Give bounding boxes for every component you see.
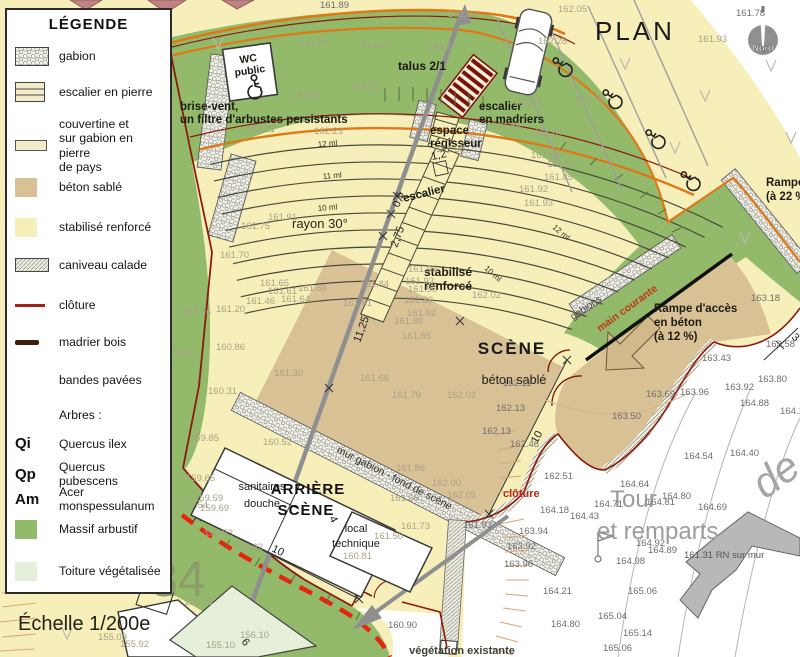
- elevation-label: 160.90: [388, 620, 417, 631]
- elevation-label: 162.23: [314, 126, 343, 137]
- elevation-label: 165.14: [623, 628, 652, 639]
- legend-item-escalier-pierre: escalier en pierre: [15, 82, 165, 102]
- plan-title: PLAN: [595, 16, 675, 46]
- elevation-label: 165.06: [603, 643, 632, 654]
- elevation-label: 159.65: [186, 473, 215, 484]
- elevation-label: 162.00: [432, 478, 461, 489]
- elevation-label: 162.11: [503, 378, 531, 389]
- legend-item-massif: Massif arbustif: [15, 520, 165, 539]
- elevation-label: 162.17: [428, 42, 457, 53]
- elevation-label: 160.81: [343, 551, 372, 562]
- elevation-label: 164.71: [594, 499, 623, 510]
- elevation-label: 162.05: [447, 490, 476, 501]
- couvertine-swatch: [15, 140, 47, 151]
- legend-item-couvertine: couvertine et sur gabion en pierre de pa…: [15, 117, 165, 175]
- local-technique-label-2: technique: [332, 538, 380, 550]
- talus-label: talus 2/1: [398, 59, 446, 73]
- ml12-label: 12 ml: [317, 138, 337, 149]
- elevation-label: 162.05: [558, 4, 587, 15]
- elevation-label: 161.91: [268, 212, 297, 223]
- elevation-label: 161.56: [390, 493, 419, 504]
- elevation-label: 161.84: [360, 279, 389, 290]
- elevation-label: 156.10: [240, 630, 269, 641]
- toiture-swatch: [15, 562, 37, 581]
- elevation-label: 161.30: [274, 368, 303, 379]
- elevation-label: 161.88: [394, 316, 423, 327]
- elevation-label: 160.52: [263, 437, 292, 448]
- elevation-label: 161.89: [492, 121, 521, 132]
- elevation-label: 161.46: [246, 296, 275, 307]
- rampe12-label-3: (à 12 %): [654, 331, 698, 343]
- legend-item-gabion: gabion: [15, 47, 165, 66]
- elevation-label: 165.06: [628, 586, 657, 597]
- elevation-label: 163.94: [519, 526, 548, 537]
- elevation-label: 159.62: [234, 542, 263, 553]
- elevation-label: 161.86: [396, 463, 425, 474]
- elevation-label: 161.85: [544, 172, 573, 183]
- espace-regisseur-label-1: espace: [430, 125, 469, 137]
- legend-item-am: Am Acer monspessulanum: [15, 485, 165, 513]
- legend-item-toiture: Toiture végétalisée: [15, 562, 165, 581]
- elevation-label: 163.80: [758, 374, 787, 385]
- elevation-label: 161.75: [241, 221, 270, 232]
- legend-item-cloture: clôture: [15, 298, 165, 312]
- elevation-label: 164.89: [648, 545, 677, 556]
- elevation-label: 161.93: [463, 520, 492, 531]
- elevation-label: 161.70: [220, 250, 249, 261]
- wc-public-building: WC public: [223, 43, 278, 102]
- legend-item-beton: béton sablé: [15, 178, 165, 197]
- elevation-label: 161.93: [524, 198, 553, 209]
- local-technique-label-1: local: [345, 523, 368, 535]
- elevation-label: 164.80: [662, 491, 691, 502]
- massif-swatch: [15, 520, 37, 539]
- elevation-label: 159.69: [200, 503, 229, 514]
- legend-item-madrier: madrier bois: [15, 335, 165, 349]
- arriere-scene-label-2: SCÈNE: [278, 502, 335, 519]
- legend-item-bandes: bandes pavées: [15, 373, 165, 387]
- elevation-label: 163.92: [507, 541, 536, 552]
- rampe12-label-1: Rampe d'accès: [654, 303, 737, 315]
- elevation-label: 161.20: [216, 304, 245, 315]
- elevation-label: 164.21: [543, 586, 572, 597]
- elevation-label: 164.69: [698, 502, 727, 513]
- elevation-label: 162.46: [510, 439, 539, 450]
- elevation-label: 159.53: [204, 528, 233, 539]
- elevation-label: 160.86: [216, 342, 245, 353]
- elevation-label: 163.43: [702, 353, 731, 364]
- elevation-label: 161.92: [519, 184, 548, 195]
- caniveau-swatch: [15, 258, 49, 272]
- elevation-label: 161.64: [281, 294, 310, 305]
- elevation-label: 164.88: [740, 398, 769, 409]
- elevation-label: 159.85: [190, 433, 219, 444]
- elevation-label: 163.69: [646, 389, 675, 400]
- legend-arbres-title: Arbres :: [15, 408, 165, 422]
- elevation-label: 162.20: [350, 82, 379, 93]
- cloture-label: clôture: [503, 488, 540, 500]
- elevation-label: 162.21: [246, 124, 275, 135]
- elevation-label: 161.73: [401, 521, 430, 532]
- escalier-pierre-swatch: [15, 82, 49, 102]
- elevation-label: 161.90: [408, 284, 437, 295]
- elevation-label: 161.93: [576, 94, 605, 105]
- cloture-swatch: [15, 304, 45, 307]
- elevation-label: 161.89: [404, 295, 433, 306]
- elevation-label: 163.58: [766, 339, 795, 350]
- elevation-label: 161.93: [698, 34, 727, 45]
- elevation-label: 161.66: [360, 373, 389, 384]
- elevation-label: 161.50: [374, 531, 403, 542]
- rampe22-label-2: (à 22 %): [766, 191, 800, 203]
- elevation-label: 164.12: [780, 406, 800, 417]
- elevation-label: 162.16: [292, 90, 321, 101]
- elevation-label: 162.13: [482, 426, 511, 437]
- elevation-label: 155.10: [206, 640, 235, 651]
- elevation-label: 156.79: [184, 597, 213, 608]
- gabion-swatch: [15, 47, 49, 66]
- legend-item-stabilise: stabilisé renforcé: [15, 218, 165, 237]
- elevation-label: 162.04: [448, 9, 477, 20]
- legend-panel: LÉGENDE gabion escalier en pierre couver…: [5, 8, 172, 594]
- elevation-label: 162.02: [300, 38, 329, 49]
- legend-item-caniveau: caniveau calade: [15, 258, 165, 272]
- elevation-label: 162.28: [538, 36, 567, 47]
- brise-vent-label-1: brise-vent,: [180, 101, 238, 113]
- elevation-label: 162.51: [544, 471, 573, 482]
- elevation-label: 160.31: [208, 386, 237, 397]
- elevation-label: 162.02: [447, 390, 476, 401]
- scale-label: Échelle 1/200e: [18, 612, 150, 635]
- elevation-label: 164.43: [570, 511, 599, 522]
- elevation-label: 164.54: [684, 451, 713, 462]
- elevation-label: 162.13: [496, 403, 525, 414]
- bandes-swatch: [15, 378, 45, 382]
- elevation-label: 163.50: [612, 411, 641, 422]
- elevation-label: 161.66: [298, 283, 327, 294]
- vegetation-label: végétation existante: [409, 645, 515, 657]
- rn-benchmark-label: 161.31 RN sur mur: [684, 550, 764, 561]
- stabilise-swatch: [15, 218, 37, 237]
- elevation-label: 165.04: [598, 611, 627, 622]
- elevation-label: 159.24: [182, 306, 211, 317]
- elevation-label: 164.98: [616, 556, 645, 567]
- elevation-label: 161.30: [436, 144, 465, 155]
- rampe22-label-1: Rampe: [766, 177, 800, 189]
- scene-label: SCÈNE: [478, 339, 547, 358]
- elevation-label: 163.18: [751, 293, 780, 304]
- elevation-label: 155.92: [120, 639, 149, 650]
- elevation-label: 164.18: [540, 505, 569, 516]
- elevation-label: 163.96: [504, 559, 533, 570]
- north-label: Nord: [753, 43, 774, 53]
- elevation-label: 161.78: [736, 8, 765, 19]
- rampe12-label-2: en béton: [654, 317, 702, 329]
- elevation-label: 161.81: [343, 298, 372, 309]
- elevation-label: 161.95: [408, 264, 437, 275]
- elevation-label: 161.89: [320, 0, 349, 11]
- elevation-label: 163.96: [680, 387, 709, 398]
- site-plan-page: WC public: [0, 0, 800, 657]
- elevation-label: 163.92: [725, 382, 754, 393]
- legend-item-qp: Qp Quercus pubescens: [15, 460, 165, 488]
- elevation-label: 161.96: [362, 40, 391, 51]
- elevation-label: 161.87: [534, 128, 563, 139]
- sanitaires-label-1: sanitaires: [238, 481, 286, 493]
- legend-title: LÉGENDE: [7, 16, 170, 33]
- elevation-label: 164.64: [620, 479, 649, 490]
- elevation-label: 164.80: [551, 619, 580, 630]
- ml10-label: 10 ml: [317, 202, 337, 213]
- rayon-label: rayon 30°: [292, 216, 348, 231]
- elevation-label: 162.02: [472, 290, 501, 301]
- elevation-label: 161.79: [392, 390, 421, 401]
- madrier-swatch: [15, 340, 39, 345]
- ml11-label: 11 ml: [322, 170, 342, 181]
- elevation-label: 164.40: [730, 448, 759, 459]
- elevation-label: 161.85: [402, 331, 431, 342]
- elevation-label: 161.97: [513, 98, 542, 109]
- legend-item-qi: Qi Quercus ilex: [15, 435, 165, 452]
- elevation-label: 161.87: [547, 159, 576, 170]
- sanitaires-label-2: douche: [244, 498, 280, 510]
- beton-swatch: [15, 178, 37, 197]
